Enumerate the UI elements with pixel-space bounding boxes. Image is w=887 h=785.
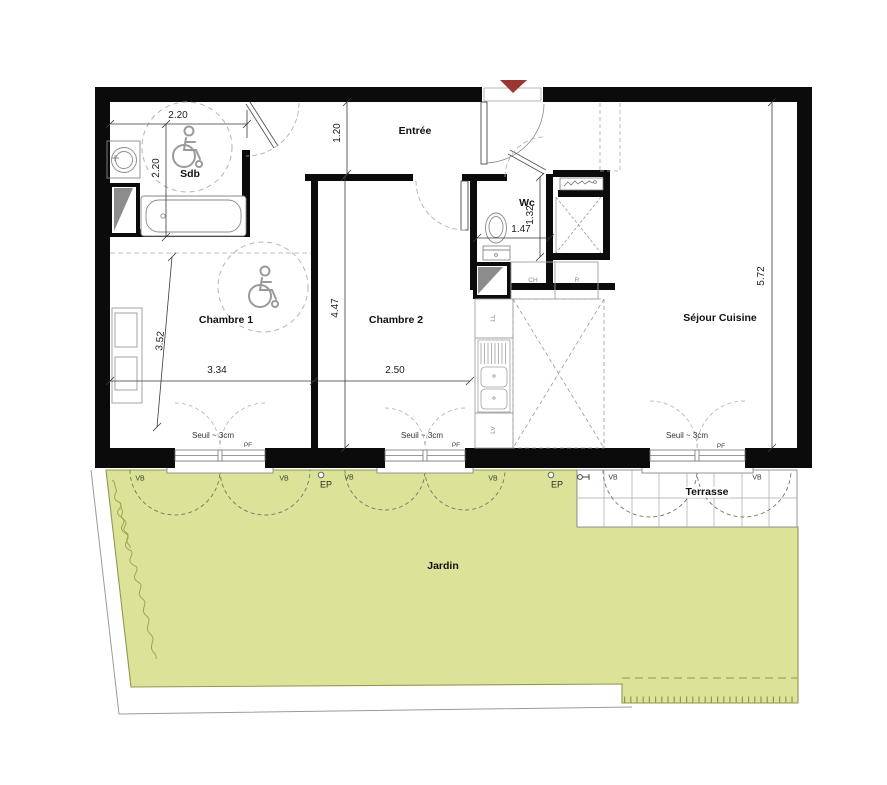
dim-chambre2-width: 2.50 — [385, 366, 404, 376]
dim-wc-depth: 1.32 — [526, 205, 536, 224]
kitchen-sink-icon — [478, 340, 510, 412]
kitchen-zone-cross — [513, 299, 604, 448]
vb-label-6: VB — [752, 475, 761, 482]
dim-sdb-width: 2.20 — [168, 111, 187, 121]
window-sills — [167, 461, 753, 473]
dim-chambre1-depth: 3.52 — [155, 331, 167, 351]
floor-plan-canvas — [0, 0, 887, 785]
electric-panel-icon — [560, 178, 603, 190]
room-label-sdb: Sdb — [180, 169, 200, 180]
room-label-terrasse: Terrasse — [683, 487, 730, 498]
dim-chambre2-depth: 4.47 — [331, 298, 341, 317]
vb-label-4: VB — [488, 476, 497, 483]
room-label-chambre2: Chambre 2 — [369, 315, 423, 326]
entry-door — [481, 102, 544, 164]
room-label-jardin: Jardin — [427, 561, 459, 572]
room-label-entree: Entrée — [399, 126, 432, 137]
ep-label-2: EP — [551, 481, 563, 490]
pf-label-2: PF — [452, 443, 460, 450]
dim-hall-width: 1.20 — [333, 123, 343, 142]
appliance-label-lv: LV — [491, 426, 498, 433]
chambre2-door — [416, 181, 468, 230]
vb-label-2: VB — [279, 476, 288, 483]
room-label-chambre1: Chambre 1 — [199, 315, 253, 326]
room-label-sejour: Séjour Cuisine — [683, 313, 757, 324]
kitchen-cabinets — [511, 262, 598, 299]
ep-label-1: EP — [320, 481, 332, 490]
seuil-label-1: Seuil ~ 3cm — [192, 432, 234, 440]
seuil-label-2: Seuil ~ 3cm — [401, 432, 443, 440]
dim-wc-width: 1.47 — [511, 225, 530, 235]
bathtub-icon — [141, 196, 246, 236]
wardrobe-icon — [112, 308, 142, 403]
closet-cross — [556, 197, 601, 253]
appliance-label-ch: CH — [528, 278, 537, 285]
pf-label-1: PF — [244, 443, 252, 450]
duct-kitchen — [473, 262, 511, 299]
dim-sdb-depth: 2.20 — [152, 158, 162, 177]
toilet-icon — [483, 213, 510, 260]
dim-sejour-depth: 5.72 — [757, 266, 767, 285]
pf-label-3: PF — [717, 444, 725, 451]
window-frames — [175, 450, 745, 461]
window-sash-arcs — [175, 401, 745, 448]
seuil-label-3: Seuil ~ 3cm — [666, 432, 708, 440]
washbasin-icon — [107, 141, 140, 178]
vb-label-3: VB — [344, 475, 353, 482]
appliance-label-ll: LL — [491, 314, 498, 321]
dim-chambre1-width: 3.34 — [207, 366, 226, 376]
dimension-lines — [106, 98, 776, 452]
sdb-door — [246, 102, 299, 156]
vb-label-1: VB — [135, 476, 144, 483]
appliance-label-r: R — [575, 278, 580, 285]
vb-label-5: VB — [608, 475, 617, 482]
exterior-walls — [95, 87, 812, 468]
sejour-opening-dashed — [600, 103, 620, 171]
duct-sdb — [108, 183, 140, 237]
floor-plan: Entrée Sdb Wc Chambre 1 Chambre 2 Séjour… — [0, 0, 887, 785]
